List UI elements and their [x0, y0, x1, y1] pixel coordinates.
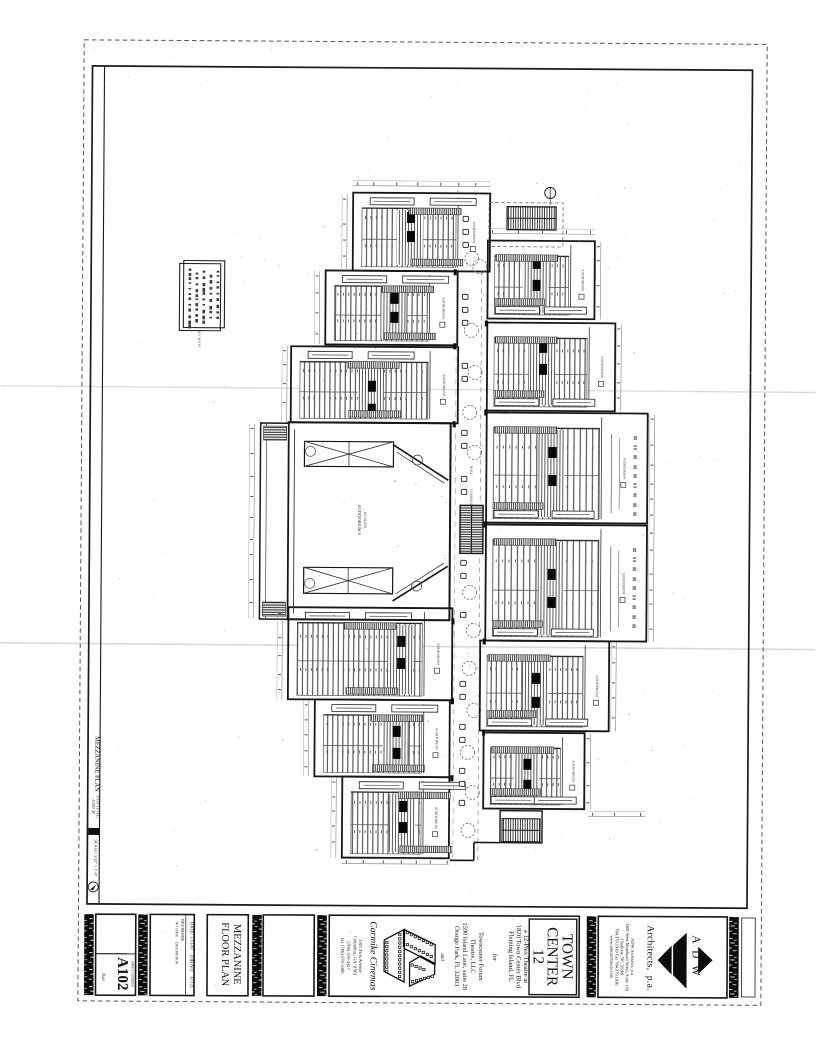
svg-text:1301 First Avenue: 1301 First Avenue [358, 939, 363, 973]
svg-text:for: for [491, 954, 498, 961]
svg-text:fax (706) 576-3380: fax (706) 576-3380 [340, 938, 345, 974]
svg-text:MEZZANINE: MEZZANINE [231, 924, 242, 985]
svg-text:1820 Town Center Blvd: 1820 Town Center Blvd [514, 925, 521, 989]
svg-text:AUDITORIUM: AUDITORIUM [595, 675, 599, 697]
svg-text:Orange Park, FL 32003: Orange Park, FL 32003 [453, 926, 460, 986]
svg-text:AUDITORIUM: AUDITORIUM [436, 643, 440, 665]
svg-text:a 12-Plex Theatre at: a 12-Plex Theatre at [522, 930, 529, 983]
svg-text:482 SEATS: 482 SEATS [363, 511, 367, 528]
svg-text:AUDITORIUM 6: AUDITORIUM 6 [357, 505, 362, 535]
svg-text:AUDITORIUM: AUDITORIUM [442, 374, 446, 396]
svg-text:ADW: ADW [690, 935, 702, 982]
svg-text:Carmike Cinemas: Carmike Cinemas [367, 921, 378, 990]
svg-text:HALL: HALL [469, 466, 473, 475]
svg-text:AUDITORIUM: AUDITORIUM [434, 807, 438, 829]
svg-text:Theatre, LLC: Theatre, LLC [469, 939, 476, 974]
svg-text:KEY NOTES: KEY NOTES [197, 330, 201, 348]
svg-text:4,900 SF: 4,900 SF [91, 799, 96, 815]
svg-text:(THIS LEVEL): (THIS LEVEL) [96, 796, 100, 819]
svg-text:REVISIONS: REVISIONS [180, 919, 185, 942]
svg-text:(706) 576-3417: (706) 576-3417 [346, 941, 351, 970]
svg-text:AUDITORIUM: AUDITORIUM [472, 222, 476, 244]
svg-text:AUDITORIUM: AUDITORIUM [622, 458, 626, 480]
svg-text:Architects, p.a.: Architects, p.a. [644, 925, 655, 991]
svg-text:DATE: 1/13/07 JOB NO: 07: DATE: 1/13/07 JOB NO: 07121 [189, 922, 194, 989]
svg-text:A102: A102 [114, 957, 130, 990]
svg-text:FLOOR PLAN: FLOOR PLAN [219, 922, 230, 986]
svg-text:AUDITORIUM: AUDITORIUM [435, 728, 439, 750]
svg-text:Fleming Island, FL: Fleming Island, FL [507, 931, 514, 982]
svg-text:Towncenter Forum: Towncenter Forum [477, 932, 484, 981]
svg-text:and: and [439, 953, 445, 961]
svg-text:AUDITORIUM: AUDITORIUM [622, 573, 626, 595]
svg-text:SCALE: 3/32" = 1'-0": SCALE: 3/32" = 1'-0" [93, 839, 98, 876]
svg-text:CORRIDOR: CORRIDOR [469, 489, 473, 506]
svg-text:SHEET NUMBER: SHEET NUMBER [130, 961, 134, 988]
svg-text:www.adwarchitects.com: www.adwarchitects.com [609, 935, 614, 979]
svg-text:NO DATE DESCRIPTION: NO DATE DESCRIPTION [175, 922, 179, 965]
svg-text:1590 Island Lane, suite 28: 1590 Island Lane, suite 28 [461, 922, 468, 990]
svg-text:Tsai: Tsai [100, 973, 106, 982]
svg-text:AUDITORIUM: AUDITORIUM [571, 760, 575, 782]
svg-text:AUDITORIUM: AUDITORIUM [581, 269, 585, 291]
svg-text:AUDITORIUM: AUDITORIUM [441, 297, 445, 319]
svg-text:AUDITORIUM: AUDITORIUM [600, 356, 604, 378]
svg-text:MEZZANINE PLAN: MEZZANINE PLAN [93, 736, 100, 792]
svg-text:12: 12 [530, 949, 547, 964]
svg-text:Columbus, GA 31901: Columbus, GA 31901 [353, 936, 358, 977]
